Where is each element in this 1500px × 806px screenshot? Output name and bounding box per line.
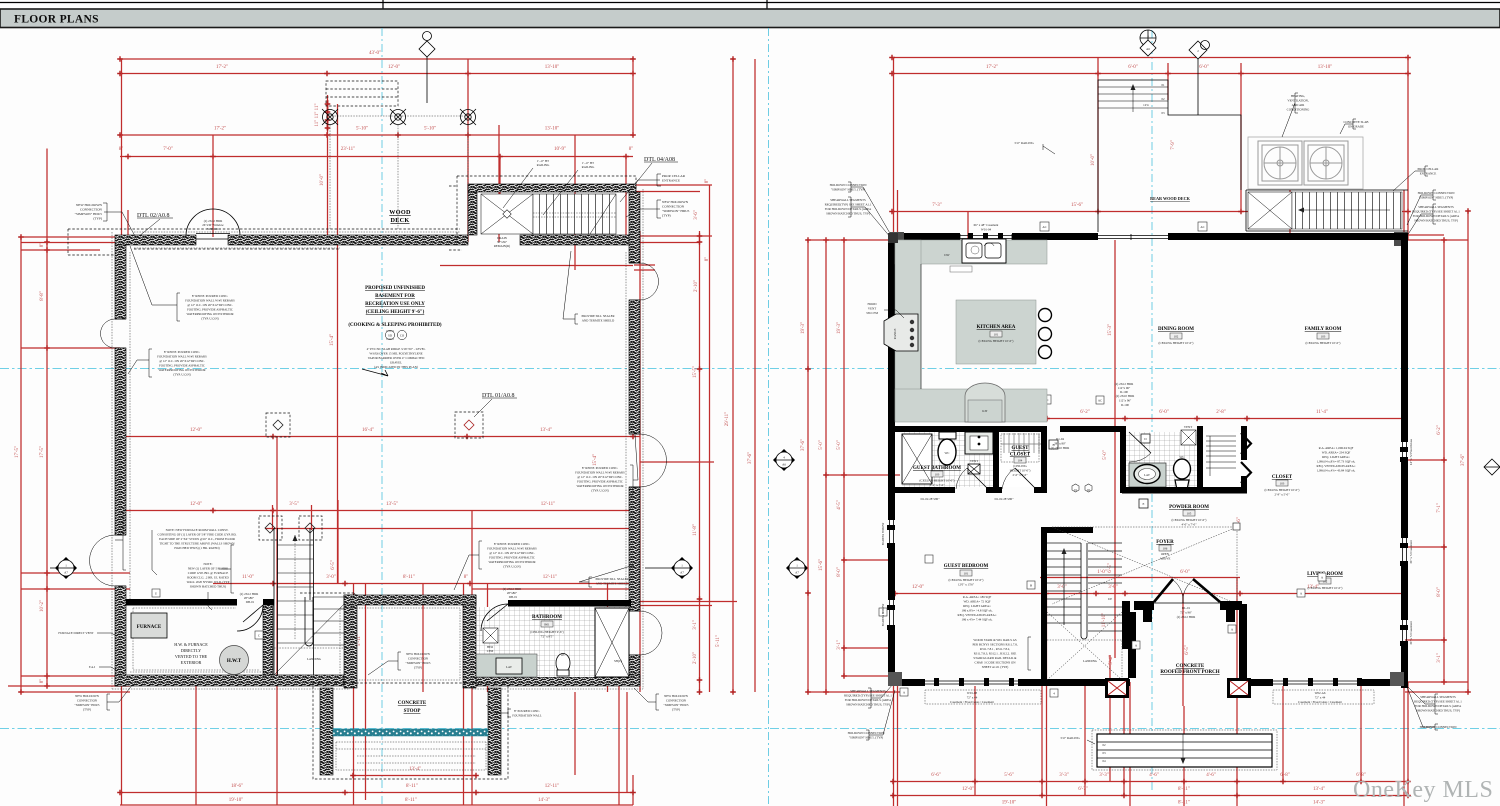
svg-text:HATCHED THUS) (1 HR. RATED): HATCHED THUS) (1 HR. RATED) (174, 546, 219, 550)
svg-text:REMAIN(R): REMAIN(R) (494, 244, 510, 248)
svg-text:103: 103 (1280, 482, 1285, 486)
svg-text:FOUNDATION WALL W/#5 REBARS: FOUNDATION WALL W/#5 REBARS (185, 299, 235, 303)
svg-text:5'-0": 5'-0" (1103, 450, 1108, 460)
svg-text:WC: WC (561, 653, 566, 657)
svg-text:103: 103 (1321, 335, 1326, 339)
svg-text:B: B (1030, 584, 1032, 588)
svg-text:(TYP): (TYP) (672, 708, 680, 712)
svg-text:02: 02 (1087, 488, 1091, 492)
svg-text:3'-1" x 7'-0": 3'-1" x 7'-0" (930, 483, 946, 487)
svg-text:8" REINF. POURED CONC.: 8" REINF. POURED CONC. (192, 294, 229, 298)
svg-text:3'-0" RAILING: 3'-0" RAILING (1060, 736, 1080, 740)
svg-text:14'-3": 14'-3" (1313, 801, 1325, 806)
svg-text:CFM: CFM (487, 649, 494, 653)
svg-text:3'-1": 3'-1" (693, 620, 698, 630)
svg-text:AND TERMITE SHIELD: AND TERMITE SHIELD (596, 582, 629, 586)
svg-text:(TYP): (TYP) (93, 217, 102, 221)
svg-text:8'-11": 8'-11" (405, 798, 417, 803)
svg-text:"SIMPSON" HDU5. (TYP): "SIMPSON" HDU5. (TYP) (849, 736, 883, 740)
svg-text:WOOD: WOOD (389, 209, 411, 216)
svg-text:REQUIRED (TYP) SEE SHEET A1.1: REQUIRED (TYP) SEE SHEET A1.1 (844, 694, 892, 698)
svg-text:(TYP): (TYP) (662, 214, 671, 218)
svg-text:EGRESS WDOW: EGRESS WDOW (881, 523, 885, 546)
svg-text:DB-01: DB-01 (246, 600, 255, 604)
svg-text:SHEARWALL SEGMENTS: SHEARWALL SEGMENTS (850, 689, 886, 693)
svg-text:DINING ROOM: DINING ROOM (1158, 327, 1194, 332)
svg-text:5'-6": 5'-6" (1004, 773, 1014, 778)
svg-text:28" x 80": 28" x 80" (1054, 442, 1067, 446)
svg-text:13'-5": 13'-5" (386, 502, 398, 507)
svg-text:3'-5": 3'-5" (289, 502, 299, 507)
svg-text:EGRESS WDOW: EGRESS WDOW (881, 604, 885, 627)
svg-text:H.W.T: H.W.T (227, 659, 242, 664)
svg-text:SHOWN HATCHED THUS): SHOWN HATCHED THUS) (190, 585, 226, 589)
svg-text:6'-5": 6'-5" (1185, 645, 1190, 655)
svg-text:KIT: KIT (982, 409, 987, 413)
svg-text:CONSISTING OF (1) LAYER OF 5/8: CONSISTING OF (1) LAYER OF 5/8" FIRE COD… (158, 533, 237, 537)
svg-text:4'-5": 4'-5" (837, 500, 842, 510)
svg-text:WOOD STAIR & WD. RAILS AS: WOOD STAIR & WD. RAILS AS (973, 638, 1016, 642)
svg-text:8": 8" (40, 243, 45, 248)
svg-text:UP: UP (1108, 597, 1112, 601)
svg-text:SHEARWALL SEGMENTS: SHEARWALL SEGMENTS (1418, 205, 1454, 209)
svg-text:8" REINF. POURED CONC.: 8" REINF. POURED CONC. (164, 350, 201, 354)
svg-text:RAILING: RAILING (537, 163, 550, 167)
svg-text:6'-0": 6'-0" (1159, 410, 1169, 415)
svg-text:(CEILING HEIGHT 10'-0"): (CEILING HEIGHT 10'-0") (979, 339, 1014, 343)
svg-text:CONNECTION: CONNECTION (77, 699, 98, 703)
svg-text:(AS INDICATED IN THIS PLAN): (AS INDICATED IN THIS PLAN) (374, 365, 418, 369)
svg-text:37'-6": 37'-6" (748, 452, 753, 464)
svg-text:3'-0" RAILING: 3'-0" RAILING (1014, 141, 1034, 145)
svg-text:DL-01: DL-01 (1182, 606, 1191, 610)
svg-text:19'-3": 19'-3" (837, 322, 842, 334)
svg-text:72" x 96": 72" x 96" (1180, 611, 1193, 615)
svg-text:104: 104 (1018, 459, 1023, 463)
svg-text:10'-0": 10'-0" (1091, 154, 1096, 166)
svg-text:5'-4": 5'-4" (1109, 655, 1114, 665)
svg-text:HOOD: HOOD (868, 302, 878, 306)
svg-text:CHAP. 3 CODE SECTIONS ON: CHAP. 3 CODE SECTIONS ON (975, 661, 1017, 665)
svg-text:CONCRETE: CONCRETE (1176, 664, 1205, 669)
svg-text:"SIMPSON" HDU5: "SIMPSON" HDU5 (75, 212, 103, 216)
svg-text:8'-11": 8'-11" (406, 784, 418, 789)
svg-text:CONNECTION: CONNECTION (662, 205, 685, 209)
svg-text:FOOTING. PROVIDE ASPHALTIC: FOOTING. PROVIDE ASPHALTIC (159, 364, 205, 368)
svg-text:NEW HOLDOWN: NEW HOLDOWN (664, 694, 689, 698)
svg-text:6'-7": 6'-7" (1078, 787, 1088, 792)
svg-text:(TYP. U.O.N): (TYP. U.O.N) (503, 565, 520, 569)
svg-text:NEW HOLDOWN: NEW HOLDOWN (406, 652, 431, 656)
svg-text:(CEILING HEIGHT 10'-0"): (CEILING HEIGHT 10'-0") (1265, 488, 1300, 492)
svg-text:PROVIDE SILL SEALER: PROVIDE SILL SEALER (581, 314, 615, 318)
svg-text:CONCRETE: CONCRETE (398, 701, 427, 706)
svg-text:B01: B01 (544, 623, 550, 627)
svg-text:8" REINF. POURED CONC.: 8" REINF. POURED CONC. (582, 466, 619, 470)
svg-text:E: E (1143, 502, 1145, 506)
svg-text:AC: AC (1042, 225, 1046, 229)
svg-text:5'-11": 5'-11" (716, 635, 721, 647)
svg-text:NEW (1) LAYER OF 5/8" FIRE: NEW (1) LAYER OF 5/8" FIRE (188, 567, 228, 571)
svg-text:8" REINF. POURED CONC.: 8" REINF. POURED CONC. (494, 542, 531, 546)
svg-text:03: 03 (1161, 111, 1165, 115)
svg-text:SHEET A1.01 (TYP): SHEET A1.01 (TYP) (982, 665, 1009, 669)
svg-text:(CEILING HEIGHT 10'-0"): (CEILING HEIGHT 10'-0") (1306, 341, 1341, 345)
svg-text:2'-9" x 5'-0": 2'-9" x 5'-0" (1275, 493, 1291, 497)
svg-text:FOYER: FOYER (1156, 540, 1174, 545)
svg-text:NEW HOLDOWN: NEW HOLDOWN (662, 200, 689, 204)
svg-text:EXTERIOR: EXTERIOR (181, 660, 202, 665)
svg-text:7'-9": 7'-9" (1171, 140, 1176, 150)
svg-text:8": 8" (629, 147, 634, 152)
svg-text:CLOSET: CLOSET (1272, 475, 1293, 480)
svg-text:FOR HOLDOWN DETAILS (AREA: FOR HOLDOWN DETAILS (AREA (845, 698, 892, 702)
svg-text:11'-8": 11'-8" (693, 524, 698, 536)
svg-text:DECK: DECK (390, 217, 409, 224)
svg-text:8'-0": 8'-0" (837, 567, 842, 577)
svg-text:4'-6": 4'-6" (1206, 773, 1216, 778)
svg-text:CONDITIONING: CONDITIONING (1287, 108, 1310, 112)
svg-text:12'-11": 12'-11" (541, 502, 555, 507)
svg-text:6'-2": 6'-2" (1080, 410, 1090, 415)
svg-text:VENT: VENT (1184, 425, 1192, 429)
svg-text:13'-10": 13'-10" (545, 65, 560, 70)
svg-text:(CEILING: (CEILING (1013, 464, 1027, 468)
svg-text:PROP. CELLAR: PROP. CELLAR (662, 174, 686, 178)
svg-text:CODE GYP. BD. @ FURNACE: CODE GYP. BD. @ FURNACE (188, 571, 229, 575)
svg-text:KITCHEN AREA: KITCHEN AREA (977, 325, 1016, 330)
svg-text:WTD-01: WTD-01 (207, 227, 219, 231)
svg-text:STAIR/GUARD RAIL DETAIL &: STAIR/GUARD RAIL DETAIL & (973, 656, 1017, 660)
svg-text:VENT: VENT (970, 459, 978, 463)
svg-text:W01-04: W01-04 (981, 228, 992, 232)
svg-text:12'-0": 12'-0" (962, 787, 974, 792)
svg-text:@ 12" O.C. ON 26"X12"DP CONC.: @ 12" O.C. ON 26"X12"DP CONC. (489, 551, 535, 555)
svg-text:186 x.8%= / 4.8 SQF ok.: 186 x.8%= / 4.8 SQF ok. (962, 609, 993, 613)
svg-text:PROPOSED UNFINISHED: PROPOSED UNFINISHED (365, 286, 425, 291)
svg-text:102: 102 (1174, 335, 1179, 339)
svg-text:GUEST: GUEST (1012, 446, 1030, 451)
svg-text:02: 02 (1102, 743, 1106, 747)
svg-text:DB-01: DB-01 (509, 595, 518, 599)
svg-text:D1-04 28"x80": D1-04 28"x80" (995, 497, 1015, 501)
svg-text:A7: A7 (680, 571, 684, 575)
svg-text:H.W. & FURNACE: H.W. & FURNACE (174, 642, 208, 647)
svg-text:12'-11": 12'-11" (543, 575, 557, 580)
svg-text:WC: WC (945, 451, 950, 455)
svg-text:TIGHT TO THE STRUCTURE ABOVE (: TIGHT TO THE STRUCTURE ABOVE (WALLS SHOW… (159, 542, 235, 546)
svg-text:@ 12" O.C. ON 26"X12"DP CONC.: @ 12" O.C. ON 26"X12"DP CONC. (187, 303, 233, 307)
svg-text:12'-0": 12'-0" (912, 585, 924, 590)
svg-text:106: 106 (1163, 547, 1168, 551)
svg-text:8'-11": 8'-11" (1178, 801, 1190, 806)
svg-text:15'-6": 15'-6" (1071, 203, 1083, 208)
svg-text:15'-4": 15'-4" (593, 454, 598, 466)
svg-text:BASEMENT FOR: BASEMENT FOR (375, 294, 415, 299)
svg-text:REQ. VENTILATION AREA=: REQ. VENTILATION AREA= (958, 613, 997, 617)
svg-text:VENTED TO THE: VENTED TO THE (175, 654, 208, 659)
svg-text:"SIMPSON" HDU5: "SIMPSON" HDU5 (662, 209, 690, 213)
svg-text:15'-4": 15'-4" (330, 334, 335, 346)
svg-text:FAMILY ROOM: FAMILY ROOM (1305, 327, 1342, 332)
svg-text:6'-0": 6'-0" (1180, 570, 1190, 575)
svg-text:01: 01 (1074, 488, 1078, 492)
svg-text:101: 101 (994, 333, 999, 337)
svg-text:PROVIDE SILL SEALER: PROVIDE SILL SEALER (595, 577, 629, 581)
svg-text:VAPOR BARRIER OVER 4" COMPACTE: VAPOR BARRIER OVER 4" COMPACTED (368, 356, 425, 360)
svg-text:REAR WOOD DECK: REAR WOOD DECK (1150, 196, 1190, 201)
svg-text:103: 103 (935, 473, 940, 477)
svg-text:CONNECTION: CONNECTION (80, 208, 103, 212)
svg-text:7'-1": 7'-1" (1437, 503, 1442, 513)
svg-text:R.A. AREA= 186 SQF: R.A. AREA= 186 SQF (963, 595, 992, 599)
svg-text:19'-10": 19'-10" (229, 798, 244, 803)
svg-text:11'-0": 11'-0" (242, 575, 254, 580)
svg-text:15'-6": 15'-6" (819, 559, 824, 571)
svg-text:WATERPROOFING ON EXTERIOR: WATERPROOFING ON EXTERIOR (158, 368, 206, 372)
svg-text:14" x 72 Fixed Glass: 14" x 72 Fixed Glass (1409, 438, 1413, 465)
svg-text:37'-6": 37'-6" (801, 439, 806, 451)
svg-text:REQ. LIGHT AREA=: REQ. LIGHT AREA= (963, 604, 991, 608)
svg-text:72" x 44: 72" x 44 (967, 696, 978, 700)
svg-text:7'-0": 7'-0" (163, 147, 173, 152)
svg-text:8'-11": 8'-11" (1178, 787, 1190, 792)
svg-text:AND TERMITE SHIELD: AND TERMITE SHIELD (582, 319, 615, 323)
svg-text:12'-0": 12'-0" (388, 65, 400, 70)
svg-text:GUEST BEDROOM: GUEST BEDROOM (944, 564, 989, 569)
svg-text:REQUIRED (TYP) SEE SHEET A1.1: REQUIRED (TYP) SEE SHEET A1.1 (1412, 210, 1460, 214)
svg-text:37'-6": 37'-6" (1461, 454, 1466, 466)
svg-text:ROOM CLG. .2 HR. UL RATED: ROOM CLG. .2 HR. UL RATED (187, 576, 229, 580)
svg-text:ROOFED FRONT PORCH: ROOFED FRONT PORCH (1160, 670, 1219, 675)
svg-text:REQ. VENTILATION AREA=: REQ. VENTILATION AREA= (1317, 464, 1356, 468)
svg-text:FURNACE: FURNACE (137, 625, 162, 630)
svg-text:3'-6": 3'-6" (694, 210, 699, 220)
svg-text:7'-3": 7'-3" (932, 203, 942, 208)
svg-text:4'-0" x 7'-0": 4'-0" x 7'-0" (1182, 523, 1198, 527)
svg-text:19'-10": 19'-10" (1002, 801, 1017, 806)
svg-text:F.A.I: F.A.I (89, 665, 95, 669)
svg-text:WC: WC (1180, 455, 1185, 459)
svg-text:12%: 12% (1143, 103, 1149, 107)
svg-text:HOLDOWN CONNECTION: HOLDOWN CONNECTION (1418, 191, 1456, 195)
svg-text:W01-08: W01-08 (967, 691, 978, 695)
svg-text:CONNECTION: CONNECTION (666, 699, 687, 703)
svg-text:10'-9": 10'-9" (554, 147, 566, 152)
svg-text:03: 03 (1102, 751, 1106, 755)
svg-text:3'-0": 3'-0" (1108, 585, 1118, 590)
svg-text:3'-0": 3'-0" (326, 575, 336, 580)
svg-text:GRAVEL: GRAVEL (390, 361, 402, 365)
svg-text:13'-4": 13'-4" (1313, 787, 1325, 792)
svg-text:NEW HOLDOWN: NEW HOLDOWN (75, 694, 100, 698)
svg-text:FOR HOLDOWN DETAILS (AREA: FOR HOLDOWN DETAILS (AREA (825, 207, 872, 211)
svg-text:2'-8": 2'-8" (1216, 410, 1226, 415)
svg-text:ON GRADE: ON GRADE (1348, 125, 1364, 129)
svg-text:5'-0": 5'-0" (819, 440, 824, 450)
svg-text:18'-6": 18'-6" (231, 784, 243, 789)
svg-text:RECREATION USE ONLY: RECREATION USE ONLY (365, 302, 425, 307)
svg-text:AC: AC (1098, 399, 1102, 403)
svg-text:17'-5": 17'-5" (40, 446, 45, 458)
svg-text:13'-10": 13'-10" (545, 127, 560, 132)
svg-text:(TYP. U.O.N): (TYP. U.O.N) (173, 373, 190, 377)
svg-text:NOTE: NEW FURNACE ROOM WALL CO: NOTE: NEW FURNACE ROOM WALL CONST. (166, 528, 229, 532)
svg-text:23'-11": 23'-11" (341, 147, 355, 152)
svg-text:10'-0": 10'-0" (320, 174, 325, 186)
svg-text:FOOTING. PROVIDE ASPHALTIC: FOOTING. PROVIDE ASPHALTIC (577, 480, 623, 484)
svg-text:(2) 2X10 HDR: (2) 2X10 HDR (1116, 394, 1135, 398)
svg-text:7'2" x 8'5": 7'2" x 8'5" (541, 635, 555, 639)
svg-text:8": 8" (464, 575, 469, 580)
svg-text:8'-0": 8'-0" (1437, 587, 1442, 597)
svg-text:Casement / Fixed Glass / Casem: Casement / Fixed Glass / Casement (1298, 700, 1342, 704)
svg-text:66" x 48" Casement: 66" x 48" Casement (974, 223, 999, 227)
svg-text:REQUIRED(TYP) SEE SHEET A1.1: REQUIRED(TYP) SEE SHEET A1.1 (825, 203, 872, 207)
svg-text:12'0" x 15'6": 12'0" x 15'6" (958, 583, 975, 587)
svg-text:11'-4": 11'-4" (1316, 410, 1328, 415)
svg-text:13'-4": 13'-4" (540, 428, 552, 433)
svg-text:WATERPROOFING ON EXTERIOR: WATERPROOFING ON EXTERIOR (576, 484, 624, 488)
svg-text:36" x 72 Casement: 36" x 72 Casement (1409, 621, 1413, 645)
svg-text:D-100: D-100 (1121, 403, 1129, 407)
svg-text:6'-0": 6'-0" (1199, 65, 1209, 70)
svg-text:FLOOR PLANS: FLOOR PLANS (14, 14, 99, 26)
svg-text:CO: CO (400, 334, 405, 338)
svg-text:17'-2": 17'-2" (216, 65, 228, 70)
svg-text:W/6X6 OVER 15 MIL POLYETHYLENE: W/6X6 OVER 15 MIL POLYETHYLENE (369, 352, 422, 356)
svg-text:13'-4": 13'-4" (409, 767, 421, 772)
svg-text:15'-3": 15'-3" (1108, 324, 1113, 336)
svg-text:"SIMPSON" HDU5: "SIMPSON" HDU5 (75, 703, 100, 707)
svg-text:HOLDOWN CONNECTION: HOLDOWN CONNECTION (830, 183, 868, 187)
svg-text:LANDING: LANDING (1083, 659, 1098, 663)
svg-text:(CEILING HEIGHT 10'-0"): (CEILING HEIGHT 10'-0") (949, 578, 984, 582)
svg-text:3'-1": 3'-1" (837, 640, 842, 650)
svg-text:5'-10": 5'-10" (424, 127, 436, 132)
svg-text:336 CFM: 336 CFM (866, 311, 878, 315)
svg-text:LAV: LAV (506, 665, 513, 669)
svg-text:WALL 2020 NYSRC WLD. (TYP: WALL 2020 NYSRC WLD. (TYP (187, 580, 230, 584)
svg-text:RANGE: RANGE (893, 329, 897, 340)
svg-text:12'-0": 12'-0" (190, 428, 202, 433)
svg-text:3'-3": 3'-3" (1099, 773, 1109, 778)
svg-text:(2) 2X12 HDR: (2) 2X12 HDR (1177, 615, 1196, 619)
svg-text:LAV: LAV (1144, 473, 1151, 477)
svg-text:WATERPROOFING ON EXTERIOR: WATERPROOFING ON EXTERIOR (186, 312, 234, 316)
svg-text:8": 8" (40, 679, 45, 684)
svg-text:(2) 2X10 HDR: (2) 2X10 HDR (1051, 446, 1070, 450)
svg-text:10'-2": 10'-2" (40, 600, 45, 612)
svg-text:FOOTING. PROVIDE ASPHALTIC: FOOTING. PROVIDE ASPHALTIC (187, 308, 233, 312)
svg-text:12'-11": 12'-11" (545, 784, 559, 789)
svg-text:11" 11" 11": 11" 11" 11" (315, 103, 320, 126)
svg-text:4" PVC/NC SLAB RIDGE 3/16"/50": 4" PVC/NC SLAB RIDGE 3/16"/50" - LEVEL (367, 347, 426, 351)
svg-text:"SIMPSON" HDU5. (TYP): "SIMPSON" HDU5. (TYP) (831, 188, 865, 192)
svg-text:"SIMPSON" HDU5: "SIMPSON" HDU5 (664, 703, 689, 707)
svg-text:29'-11": 29'-11" (725, 412, 730, 426)
svg-text:FOUNDATION WALL W/#5 REBARS: FOUNDATION WALL W/#5 REBARS (157, 355, 207, 359)
svg-text:1'-0": 1'-0" (1097, 570, 1107, 575)
svg-text:WD. AREA= 234 SQF: WD. AREA= 234 SQF (1322, 451, 1351, 455)
svg-text:2'-10": 2'-10" (694, 280, 699, 292)
svg-text:6'-8": 6'-8" (1280, 773, 1290, 778)
svg-text:14'-3": 14'-3" (538, 798, 550, 803)
svg-text:D1-04 28"x80": D1-04 28"x80" (921, 497, 941, 501)
svg-text:ENTRANCE: ENTRANCE (1420, 172, 1437, 176)
svg-text:5'-11": 5'-11" (357, 634, 362, 646)
svg-text:POWDER ROOM: POWDER ROOM (1169, 505, 1209, 510)
svg-text:GUEST BATHROOM: GUEST BATHROOM (913, 466, 961, 471)
svg-text:STOOP: STOOP (404, 709, 421, 714)
svg-text:C: C (258, 634, 260, 638)
svg-text:SHEARWALL SEGMENTS: SHEARWALL SEGMENTS (830, 198, 866, 202)
svg-text:FOUNDATION WALL W/#5 REBARS: FOUNDATION WALL W/#5 REBARS (487, 547, 537, 551)
svg-text:FOUNDATION WALL W/#5 REBARS: FOUNDATION WALL W/#5 REBARS (575, 471, 625, 475)
svg-text:04: 04 (1102, 759, 1106, 763)
svg-text:5'-10": 5'-10" (356, 127, 368, 132)
svg-text:(COOKING & SLEEPING PROHIBITED: (COOKING & SLEEPING PROHIBITED) (348, 323, 442, 328)
svg-text:3'-1": 3'-1" (1437, 653, 1442, 663)
svg-text:(CEILING HEIGHT 9'-6"): (CEILING HEIGHT 9'-6") (366, 310, 425, 315)
svg-text:(TYP): (TYP) (414, 666, 422, 670)
svg-text:(CEILING HEIGHT 10'-0"): (CEILING HEIGHT 10'-0") (920, 479, 955, 483)
svg-text:WD. AREA= 72 SQF: WD. AREA= 72 SQF (963, 600, 990, 604)
svg-text:(CEILING HEIGHT 10'-0"): (CEILING HEIGHT 10'-0") (1159, 341, 1194, 345)
svg-text:(TYP. U.O.N): (TYP. U.O.N) (201, 317, 218, 321)
svg-text:8'-8": 8'-8" (40, 291, 45, 301)
svg-text:W02-A6: W02-A6 (1315, 691, 1326, 695)
svg-text:6'-5": 6'-5" (1108, 563, 1113, 573)
svg-text:8'-11": 8'-11" (403, 575, 415, 580)
svg-text:RAILING: RAILING (582, 165, 595, 169)
svg-text:NOTE:: NOTE: (203, 562, 212, 566)
svg-text:36" x 72 Casement: 36" x 72 Casement (1409, 540, 1413, 564)
svg-text:A6: A6 (782, 463, 786, 467)
svg-text:01: 01 (1161, 83, 1165, 87)
svg-text:LANDING: LANDING (307, 657, 322, 661)
svg-text:Casement / Fixed Glass / Casem: Casement / Fixed Glass / Casement (950, 700, 994, 704)
svg-text:3'-3": 3'-3" (1059, 773, 1069, 778)
svg-text:4'-6": 4'-6" (1149, 773, 1159, 778)
svg-text:ENTRANCE: ENTRANCE (662, 179, 680, 183)
svg-text:HEIGHT 10'-0"): HEIGHT 10'-0") (1010, 469, 1031, 473)
svg-text:FOUNDATION WALL: FOUNDATION WALL (512, 714, 541, 718)
svg-text:19'-3": 19'-3" (801, 322, 806, 334)
svg-text:(CEILING HEIGHT 10'-0"): (CEILING HEIGHT 10'-0") (1172, 518, 1207, 522)
svg-text:VENT: VENT (868, 307, 876, 311)
svg-text:D1-04: D1-04 (1056, 437, 1064, 441)
svg-text:"SIMPSON" HDU5. (TYP): "SIMPSON" HDU5. (TYP) (1419, 196, 1453, 200)
svg-text:CONCRETE SLAB: CONCRETE SLAB (1343, 120, 1368, 124)
svg-text:OneKey MLS: OneKey MLS (1353, 777, 1493, 803)
svg-text:A6: A6 (1146, 47, 1150, 51)
svg-text:6'-6": 6'-6" (931, 773, 941, 778)
svg-text:A7: A7 (64, 571, 68, 575)
svg-text:@ 12" O.C. ON 26"X12"DP CONC.: @ 12" O.C. ON 26"X12"DP CONC. (159, 359, 205, 363)
svg-text:13'-10": 13'-10" (1318, 65, 1333, 70)
svg-text:SHEARWALL SEGMENTS: SHEARWALL SEGMENTS (1420, 695, 1456, 699)
svg-text:CONNECTION: CONNECTION (408, 657, 429, 661)
svg-text:105: 105 (1187, 512, 1192, 516)
svg-text:PROP. CELLAR: PROP. CELLAR (1418, 167, 1440, 171)
svg-text:2'-10": 2'-10" (693, 652, 698, 664)
svg-text:FOR HOLDOWN DETAILS (AREA: FOR HOLDOWN DETAILS (AREA (1415, 704, 1462, 708)
svg-text:16'-4": 16'-4" (362, 428, 374, 433)
svg-text:DW: DW (944, 253, 949, 257)
svg-text:8" POURED CONC.: 8" POURED CONC. (514, 709, 540, 713)
svg-text:12'-0": 12'-0" (190, 502, 202, 507)
